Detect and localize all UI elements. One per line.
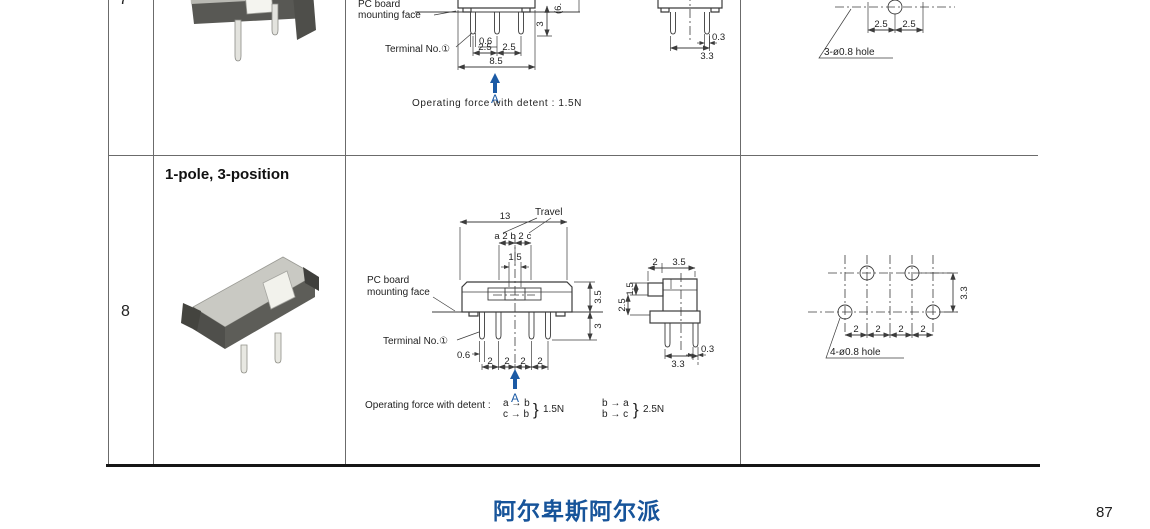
position-label: c xyxy=(527,231,532,242)
force-value: 2.5N xyxy=(643,404,664,415)
terminal-label: Terminal No.① xyxy=(385,44,450,55)
dim-label: (6. xyxy=(553,3,564,14)
dim-label: 1.5 xyxy=(625,282,636,295)
switch-front-outline xyxy=(462,282,572,316)
catalog-page: 7 8 1-pole, 3-position xyxy=(0,0,1150,529)
row8-dimension-drawing: 13 Travel a 2 b 2 c 1.5 xyxy=(345,155,740,466)
terminal-pins xyxy=(665,323,698,347)
row8-type-label: 1-pole, 3-position xyxy=(165,166,289,183)
page-number: 87 xyxy=(1096,504,1113,521)
switch-front-outline xyxy=(458,0,535,12)
terminal-pins xyxy=(471,12,524,34)
dim-label: 2 xyxy=(537,356,542,367)
pc-board-label: mounting face xyxy=(367,287,430,298)
switch-knob xyxy=(245,0,273,14)
dim-0-6-lines xyxy=(472,341,485,362)
switch-pin xyxy=(272,4,278,35)
brace: } xyxy=(533,400,539,419)
dim-label: 2 xyxy=(652,257,657,268)
dim-label: 2 xyxy=(504,356,509,367)
dim-label: 8.5 xyxy=(489,56,502,67)
row7-product-photo xyxy=(185,0,335,66)
pcb-holes xyxy=(838,266,940,319)
dim-label: 0.3 xyxy=(712,32,725,43)
center-lines xyxy=(808,255,958,335)
row8-number: 8 xyxy=(121,303,130,321)
dim-label: 2.5 xyxy=(874,19,887,30)
terminal-label: Terminal No.① xyxy=(383,336,448,347)
dim-label: 2 xyxy=(487,356,492,367)
travel-label: Travel xyxy=(535,207,562,218)
dim-label: 2 xyxy=(518,231,523,242)
table-column-line-1 xyxy=(153,0,154,466)
brace: } xyxy=(633,400,639,419)
hole-label: 3-ø0.8 hole xyxy=(824,47,875,58)
force-case: c → b xyxy=(503,409,530,420)
row7-pcb-pattern: 2.5 2.5 3-ø0.8 hole xyxy=(740,0,1038,155)
pointer-arrow xyxy=(490,73,500,93)
leader-line xyxy=(457,332,479,340)
dim-label: 2.5 xyxy=(902,19,915,30)
row8-product-photo xyxy=(175,245,335,375)
force-case: b → c xyxy=(602,409,628,420)
dim-label: 0.3 xyxy=(701,344,714,355)
switch-side-outline xyxy=(648,279,700,323)
operating-force-text: Operating force with detent : xyxy=(365,400,491,411)
switch-pin xyxy=(235,20,241,61)
dim-label: 2.5 xyxy=(478,42,491,53)
dim-label: 3.3 xyxy=(959,286,970,299)
switch-end-bracket xyxy=(293,0,316,40)
dim-label: 2 xyxy=(920,324,925,335)
row8-pcb-pattern: 3.3 2 2 2 2 4-ø0.8 hole xyxy=(740,155,1038,466)
position-label: a xyxy=(494,231,500,242)
dim-label: 2 xyxy=(898,324,903,335)
force-value: 1.5N xyxy=(543,404,564,415)
dim-label: 13 xyxy=(500,211,511,222)
dim-label: 3.3 xyxy=(700,51,713,62)
switch-pin xyxy=(275,333,281,363)
row7-dimension-drawing: 0.6 2.5 2.5 8.5 3 (6. PC board mounting … xyxy=(345,0,740,155)
operating-force-text: Operating force with detent : 1.5N xyxy=(412,98,582,109)
dim-label: 3 xyxy=(535,21,546,26)
switch-pin xyxy=(241,345,247,373)
side-detail-lines xyxy=(663,279,697,290)
hole-label: 4-ø0.8 hole xyxy=(830,347,881,358)
table-border-left xyxy=(108,0,109,466)
dim-label: 2 xyxy=(875,324,880,335)
dim-label: 2 xyxy=(520,356,525,367)
dim-label: 2 xyxy=(502,231,507,242)
pc-board-label: mounting face xyxy=(358,10,421,21)
dim-label: 2 xyxy=(853,324,858,335)
force-case: b → a xyxy=(602,398,629,409)
dim-extension-lines xyxy=(921,273,958,312)
dim-label: 3.3 xyxy=(671,359,684,370)
pc-board-label: PC board xyxy=(358,0,400,10)
force-case: a → b xyxy=(503,398,530,409)
leader-line xyxy=(433,297,455,311)
pointer-arrow xyxy=(510,369,520,389)
dim-label: 3.5 xyxy=(593,290,604,303)
slider-track xyxy=(488,288,541,300)
dim-label: 3.5 xyxy=(672,257,685,268)
pc-board-label: PC board xyxy=(367,275,409,286)
dim-label: 2.5 xyxy=(617,298,628,311)
dim-label: 0.6 xyxy=(457,350,470,361)
row7-number: 7 xyxy=(119,0,128,9)
dim-label: 3 xyxy=(593,323,604,328)
footer-brand: 阿尔卑斯阿尔派 xyxy=(493,492,661,526)
dim-label: 2.5 xyxy=(502,42,515,53)
